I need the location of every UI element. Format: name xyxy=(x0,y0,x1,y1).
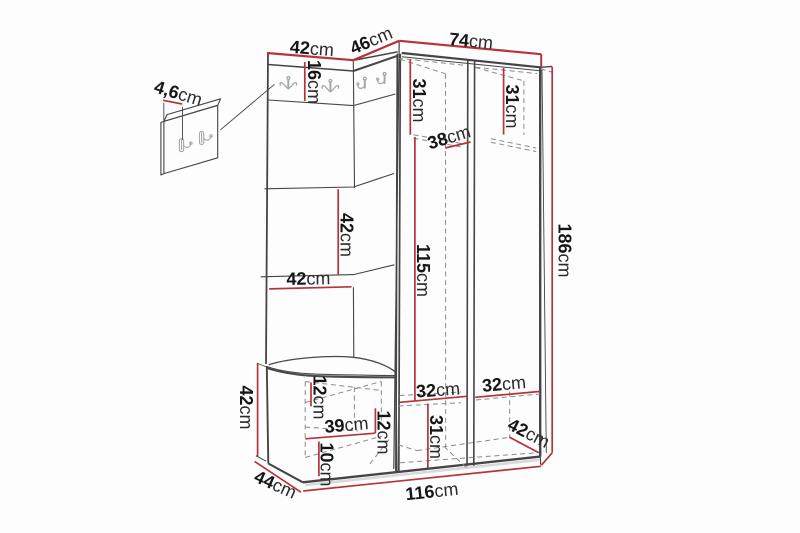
svg-text:39cm: 39cm xyxy=(324,413,370,437)
svg-text:42cm: 42cm xyxy=(337,213,357,257)
svg-text:31cm: 31cm xyxy=(502,84,522,128)
svg-text:32cm: 32cm xyxy=(415,379,460,402)
svg-text:42cm: 42cm xyxy=(286,268,330,289)
svg-text:32cm: 32cm xyxy=(481,372,527,396)
svg-text:12cm: 12cm xyxy=(310,375,330,419)
svg-text:12cm: 12cm xyxy=(374,410,394,454)
svg-text:42cm: 42cm xyxy=(289,37,334,60)
svg-text:10cm: 10cm xyxy=(317,442,337,486)
svg-text:31cm: 31cm xyxy=(426,415,446,459)
svg-text:186cm: 186cm xyxy=(555,223,575,277)
svg-text:42cm: 42cm xyxy=(236,385,256,429)
svg-text:31cm: 31cm xyxy=(409,78,429,122)
svg-text:115cm: 115cm xyxy=(413,244,433,297)
svg-text:74cm: 74cm xyxy=(448,29,494,53)
svg-text:16cm: 16cm xyxy=(304,60,324,104)
